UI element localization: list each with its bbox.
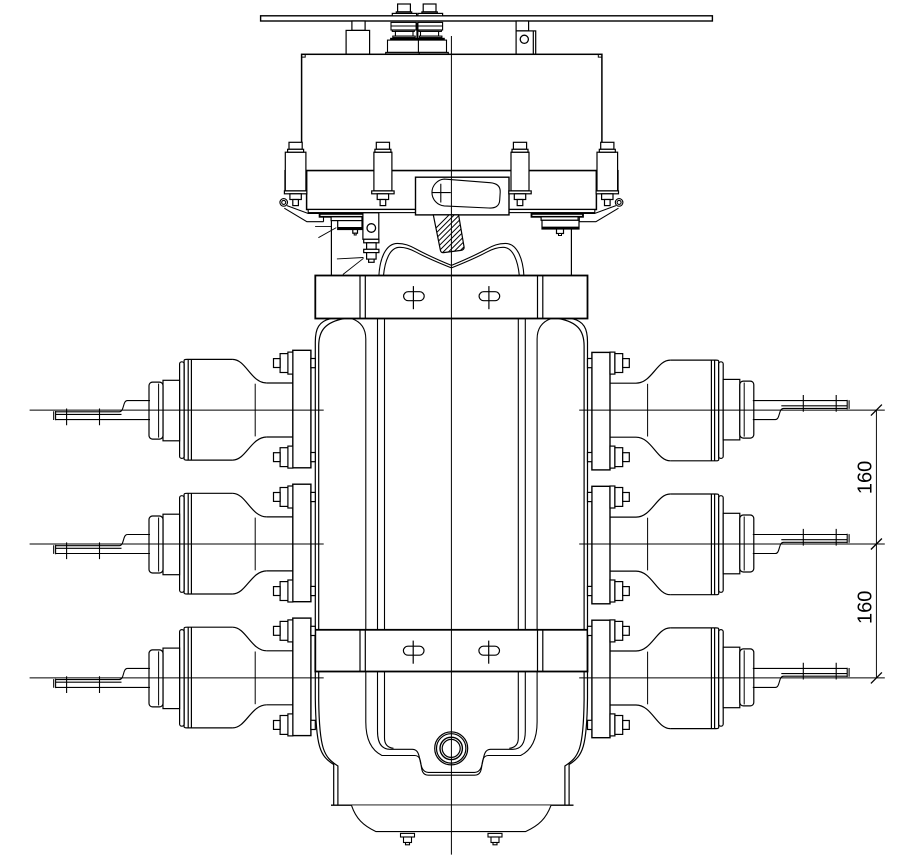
svg-text:160: 160 [855,591,877,624]
svg-text:160: 160 [855,461,877,494]
